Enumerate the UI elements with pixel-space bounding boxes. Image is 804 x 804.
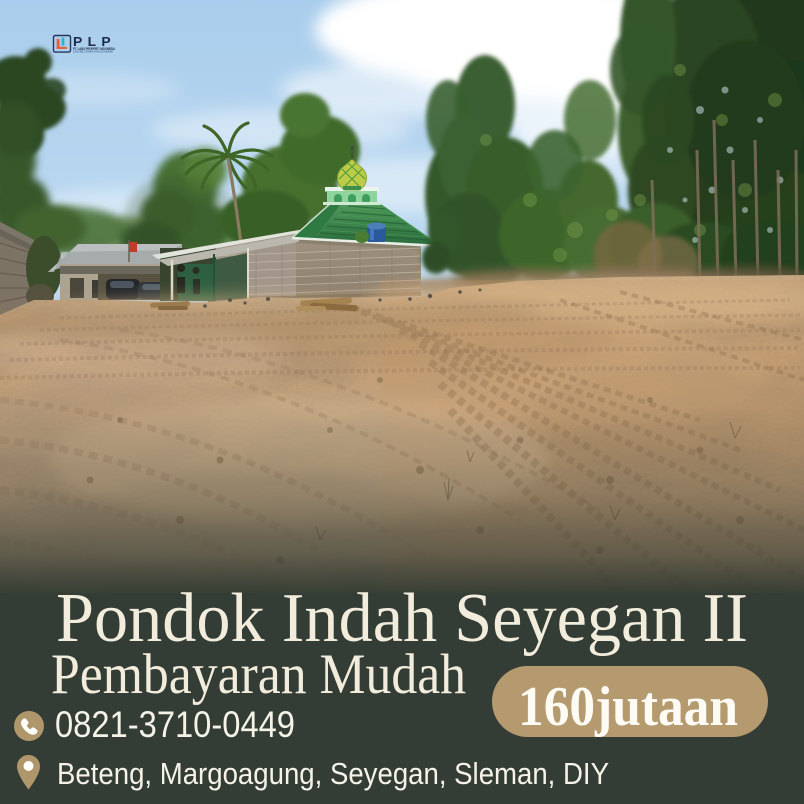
svg-text:JUAL BELI TANAH KAVLING MURAH: JUAL BELI TANAH KAVLING MURAH [73,51,113,54]
svg-text:160jutaan: 160jutaan [518,676,738,738]
svg-text:Pembayaran Mudah: Pembayaran Mudah [51,643,466,706]
svg-text:0821-3710-0449: 0821-3710-0449 [55,704,295,745]
svg-text:Beteng, Margoagung, Seyegan, S: Beteng, Margoagung, Seyegan, Sleman, DIY [57,756,609,791]
